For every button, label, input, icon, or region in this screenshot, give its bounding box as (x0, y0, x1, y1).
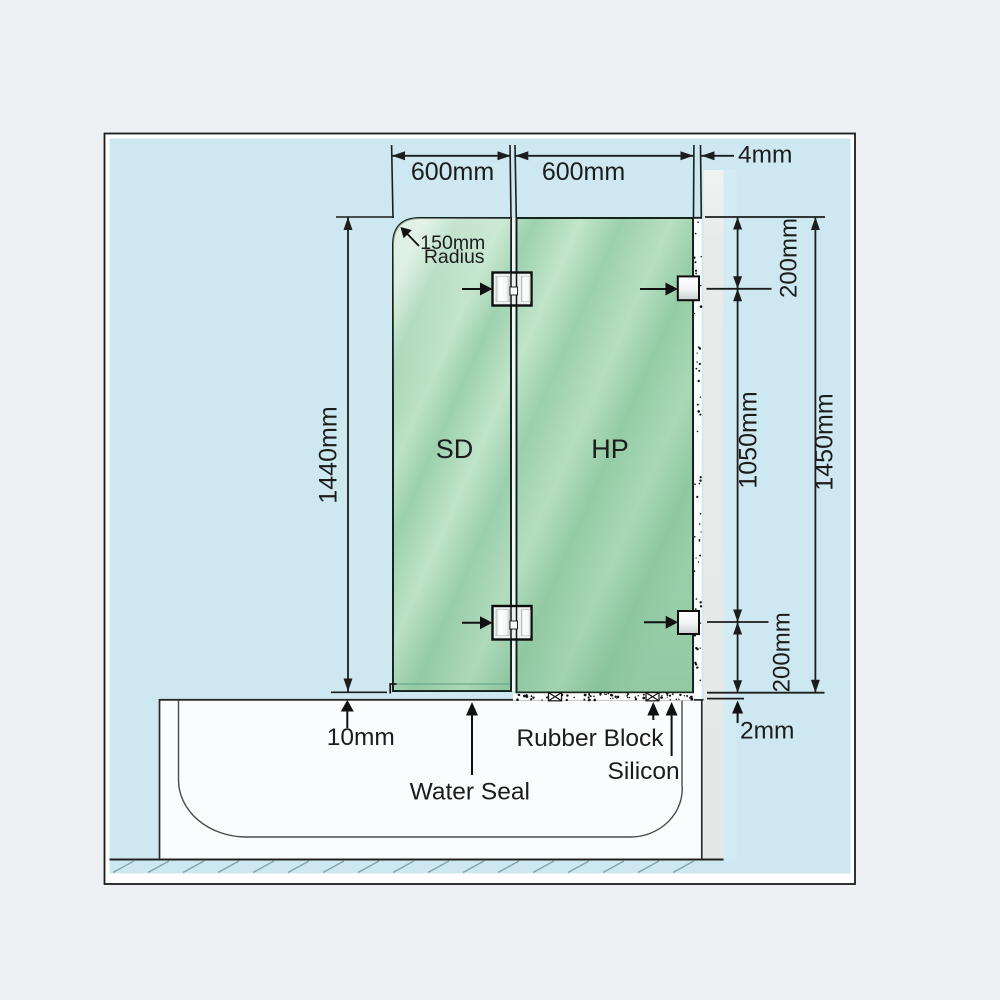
svg-text:1450mm: 1450mm (811, 393, 839, 490)
svg-text:4mm: 4mm (738, 142, 792, 169)
svg-text:SD: SD (436, 434, 474, 464)
svg-text:200mm: 200mm (769, 612, 796, 692)
svg-text:1440mm: 1440mm (315, 406, 343, 503)
svg-text:2mm: 2mm (740, 718, 794, 745)
svg-text:600mm: 600mm (411, 158, 494, 186)
svg-text:Silicon: Silicon (608, 758, 680, 785)
svg-text:Rubber Block: Rubber Block (516, 725, 664, 752)
svg-text:Water Seal: Water Seal (410, 779, 530, 806)
svg-text:10mm: 10mm (327, 724, 395, 751)
svg-text:Radius: Radius (424, 246, 485, 268)
svg-text:200mm: 200mm (776, 218, 803, 298)
svg-text:HP: HP (591, 434, 629, 464)
svg-text:600mm: 600mm (542, 158, 625, 186)
svg-text:1050mm: 1050mm (735, 391, 763, 488)
